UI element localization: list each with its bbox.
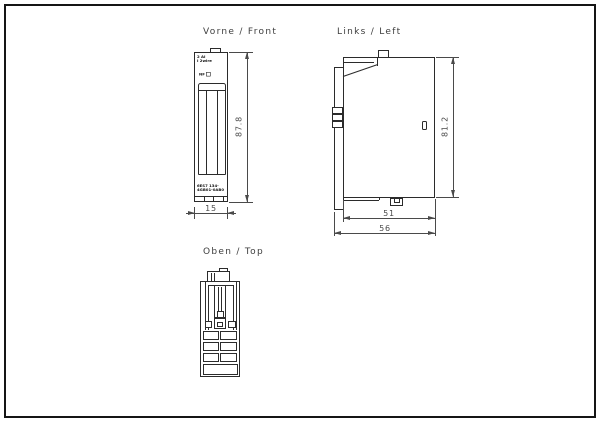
extension-line (229, 202, 253, 203)
module-label-line2: I 2wire (197, 59, 212, 63)
extension-line (436, 57, 459, 58)
extension-line (229, 52, 253, 53)
dimension-arrow-icon (188, 211, 195, 215)
front-bottom-divider-1 (204, 196, 205, 202)
top-terminal-cell (220, 342, 237, 352)
dimension-arrow-icon (451, 57, 455, 64)
top-terminal-cell (220, 353, 237, 363)
left-mounting-hook-notch (394, 198, 400, 203)
left-ridge-3 (332, 121, 343, 128)
dimension-arrow-icon (245, 52, 249, 59)
dimension-arrow-icon (428, 216, 435, 220)
page-border-frame (4, 4, 596, 418)
top-terminal-cell (203, 342, 219, 352)
dimension-arrow-icon (227, 211, 234, 215)
dimension-arrow-icon (334, 231, 341, 235)
technical-drawing-page: { "drawing": { "views": { "front": { "ti… (0, 0, 600, 424)
top-connector-line-2 (214, 273, 215, 281)
terminal-cover-column-line-1 (206, 90, 207, 175)
top-terminal-cell (203, 331, 219, 341)
top-inner-wall-right-outer (236, 281, 237, 330)
top-bottom-compartment (203, 364, 238, 376)
dimension-line (343, 218, 435, 219)
left-bottom-step-line (343, 200, 379, 201)
front-order-number: 6ES7 134- 4GB01-0AB0 (197, 184, 224, 192)
front-height-dimension: 87.8 (235, 112, 244, 142)
top-slot-line-2 (221, 287, 222, 311)
top-terminal-cell (220, 331, 237, 341)
terminal-cover-column-line-2 (217, 90, 218, 175)
top-view-title: Oben / Top (203, 247, 264, 257)
left-depth-body-dimension: 51 (374, 209, 404, 218)
top-slot-line-1 (218, 287, 219, 311)
order-number-line2: 4GB01-0AB0 (197, 188, 224, 192)
left-step-line (377, 57, 378, 66)
front-view-title: Vorne / Front (203, 27, 277, 37)
left-housing-slot (422, 121, 427, 130)
left-view-title: Links / Left (337, 27, 401, 37)
led-label: NF (199, 72, 205, 76)
left-depth-total-dimension: 56 (370, 224, 400, 233)
top-socket-left (205, 321, 213, 328)
extension-line (435, 199, 436, 236)
left-flange-line (343, 62, 374, 63)
front-led-marker: NF (199, 72, 210, 77)
dimension-line (247, 52, 248, 202)
top-terminal-cell (203, 353, 219, 363)
top-connector-line-1 (211, 273, 212, 281)
extension-line (436, 197, 459, 198)
front-bottom-divider-2 (213, 196, 214, 202)
front-terminal-cover (198, 83, 226, 175)
terminal-cover-cap-line (198, 90, 226, 91)
top-socket-center-inner (217, 322, 223, 328)
dimension-line (453, 57, 454, 197)
front-bottom-divider-3 (223, 196, 224, 202)
left-height-dimension: 81.2 (441, 112, 450, 142)
dimension-arrow-icon (245, 195, 249, 202)
dimension-line (334, 233, 435, 234)
left-front-strip (334, 67, 344, 210)
dimension-arrow-icon (428, 231, 435, 235)
top-slot-notch (217, 311, 224, 318)
front-module-label: 2 AI I 2wire (197, 55, 212, 63)
left-ridge-1 (332, 107, 343, 114)
dimension-arrow-icon (451, 190, 455, 197)
top-socket-right (228, 321, 236, 328)
dimension-arrow-icon (343, 216, 350, 220)
led-square-icon (206, 72, 210, 76)
front-width-dimension: 15 (196, 204, 226, 213)
left-bottom-step-vertical (379, 197, 380, 200)
left-ridge-2 (332, 114, 343, 121)
